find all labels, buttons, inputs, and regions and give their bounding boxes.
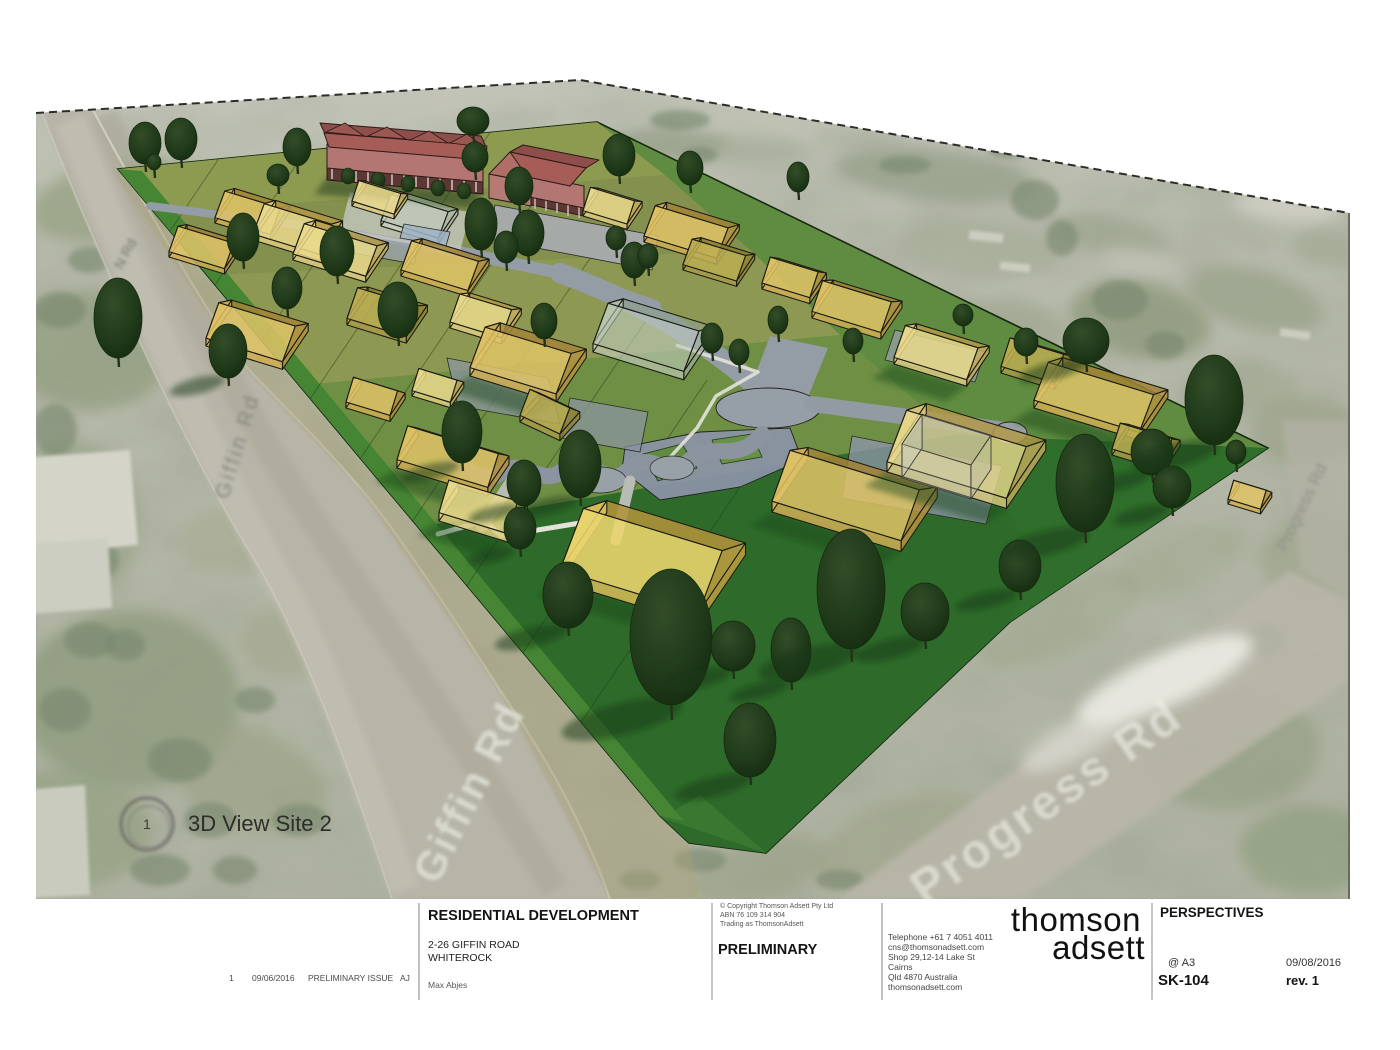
svg-text:@ A3: @ A3 <box>1168 957 1195 969</box>
svg-text:09/06/2016: 09/06/2016 <box>252 973 295 983</box>
svg-text:ABN 76 109 314 904: ABN 76 109 314 904 <box>720 912 785 919</box>
svg-text:1: 1 <box>229 973 234 983</box>
svg-text:AJ: AJ <box>400 973 410 983</box>
svg-text:adsett: adsett <box>1052 929 1145 966</box>
svg-text:2-26 GIFFIN ROAD: 2-26 GIFFIN ROAD <box>428 939 520 951</box>
svg-text:Trading as ThomsonAdsett: Trading as ThomsonAdsett <box>720 921 804 928</box>
svg-text:PRELIMINARY: PRELIMINARY <box>718 942 818 958</box>
svg-text:Telephone +61 7 4051 4011: Telephone +61 7 4051 4011 <box>888 932 993 942</box>
svg-text:SK-104: SK-104 <box>1158 972 1210 989</box>
svg-text:Shop 29,12-14 Lake St: Shop 29,12-14 Lake St <box>888 952 976 962</box>
svg-text:© Copyright Thomson Adsett Pty: © Copyright Thomson Adsett Pty Ltd <box>720 902 833 910</box>
svg-text:cns@thomsonadsett.com: cns@thomsonadsett.com <box>888 942 984 952</box>
svg-text:RESIDENTIAL DEVELOPMENT: RESIDENTIAL DEVELOPMENT <box>428 908 639 924</box>
svg-text:PRELIMINARY ISSUE: PRELIMINARY ISSUE <box>308 973 394 983</box>
svg-text:PERSPECTIVES: PERSPECTIVES <box>1160 905 1264 920</box>
svg-text:Qld 4870 Australia: Qld 4870 Australia <box>888 972 958 982</box>
svg-text:1: 1 <box>143 816 151 832</box>
svg-text:thomsonadsett.com: thomsonadsett.com <box>888 982 962 992</box>
svg-text:rev. 1: rev. 1 <box>1286 973 1319 988</box>
svg-text:3D View Site 2: 3D View Site 2 <box>188 811 332 836</box>
svg-text:WHITEROCK: WHITEROCK <box>428 952 492 964</box>
svg-text:09/08/2016: 09/08/2016 <box>1286 957 1341 969</box>
svg-text:Max Abjes: Max Abjes <box>428 980 467 990</box>
svg-text:Cairns: Cairns <box>888 962 913 972</box>
